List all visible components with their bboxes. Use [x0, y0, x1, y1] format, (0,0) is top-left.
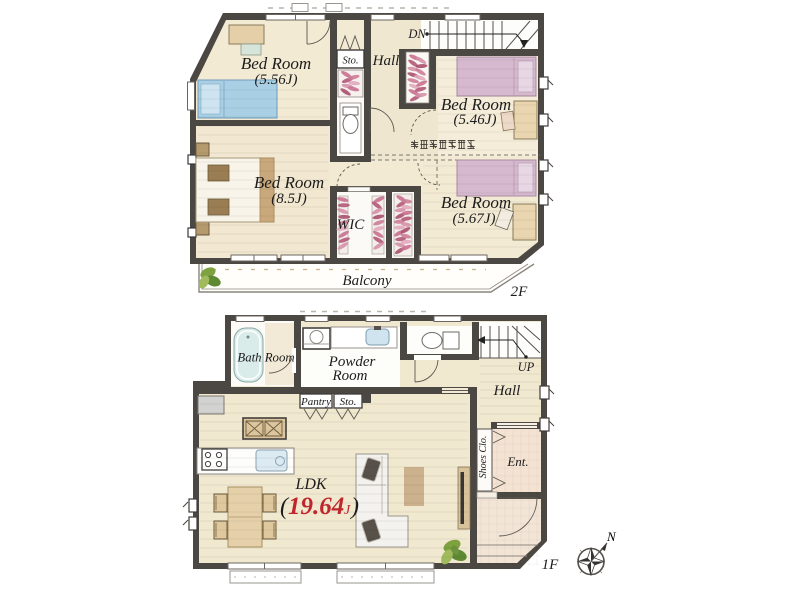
svg-text:(8.5J): (8.5J)	[271, 191, 306, 207]
svg-text:(5.67J): (5.67J)	[453, 211, 496, 227]
svg-text:Bath Room: Bath Room	[237, 351, 294, 365]
svg-text:Sto.: Sto.	[342, 56, 358, 67]
svg-text:(5.56J): (5.56J)	[255, 72, 298, 88]
svg-text:2F: 2F	[511, 284, 529, 300]
svg-text:Hall: Hall	[493, 383, 521, 399]
svg-text:Ent.: Ent.	[506, 454, 528, 469]
svg-text:Sto.: Sto.	[340, 396, 357, 408]
svg-text:Hall: Hall	[372, 53, 400, 69]
svg-text:19.64: 19.64	[288, 493, 344, 520]
svg-text:1F: 1F	[542, 557, 560, 573]
svg-text:Bed Room: Bed Room	[441, 193, 511, 212]
svg-text:(5.46J): (5.46J)	[454, 112, 497, 128]
svg-text:Bed Room: Bed Room	[254, 173, 324, 192]
svg-text:WIC: WIC	[337, 217, 365, 233]
svg-text:Bed Room: Bed Room	[241, 54, 311, 73]
svg-text:J: J	[344, 503, 351, 518]
svg-text:DN: DN	[407, 27, 426, 41]
svg-text:): )	[349, 494, 359, 520]
svg-text:Pantry: Pantry	[300, 396, 331, 408]
svg-text:UP: UP	[518, 360, 535, 374]
svg-text:Shoes Clo.: Shoes Clo.	[478, 436, 489, 479]
svg-text:Balcony: Balcony	[342, 273, 391, 289]
svg-text:N: N	[606, 529, 617, 544]
svg-text:Room: Room	[332, 368, 368, 384]
svg-text:LDK: LDK	[294, 476, 327, 493]
